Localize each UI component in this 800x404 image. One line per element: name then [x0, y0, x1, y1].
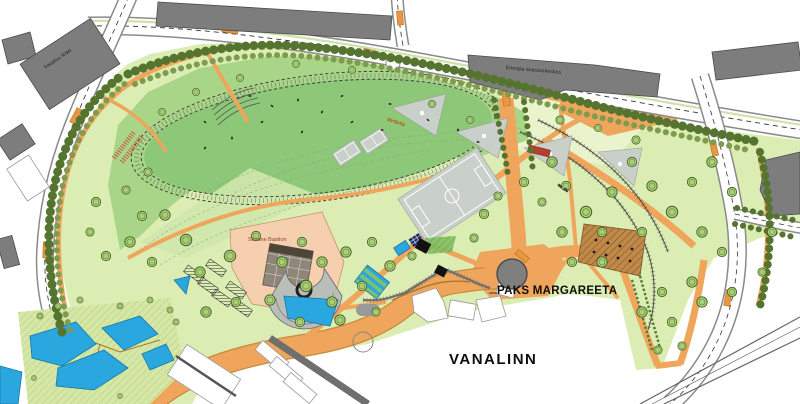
label-vanalinn: VANALINN: [449, 352, 537, 367]
label-paks-margareeta: PAKS MARGAREETA: [497, 286, 617, 298]
map-drawing: [0, 0, 800, 404]
site-plan-map: kauplus RIMI Energia avastuskeskus Skoon…: [0, 0, 800, 404]
label-skoone-bastion: Skoone Bastion: [248, 238, 287, 244]
